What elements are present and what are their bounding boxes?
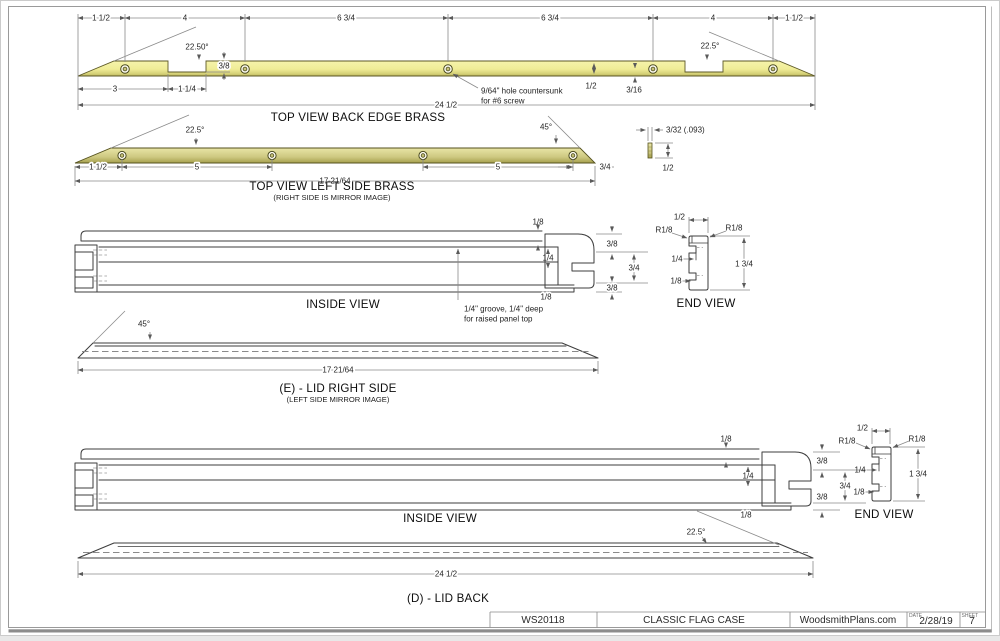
radius-text: R1/8 (656, 226, 673, 235)
groove-note: 1/4" groove, 1/4" deep (464, 305, 544, 314)
angle-text: 45° (540, 123, 552, 132)
date-value: 2/28/19 (919, 616, 953, 627)
dim-text: 1 3/4 (909, 470, 927, 479)
dim-text: 6 3/4 (337, 14, 355, 23)
radius-text: R1/8 (909, 435, 926, 444)
screw-hole (569, 151, 577, 159)
project-title: CLASSIC FLAG CASE (643, 615, 745, 626)
dim-text: 5 (496, 163, 501, 172)
dim-text: 1/8 (532, 218, 544, 227)
source-site: WoodsmithPlans.com (800, 615, 897, 626)
view-title: END VIEW (677, 297, 736, 310)
dim-text: 1/4 (742, 472, 754, 481)
screw-hole (241, 65, 250, 74)
angle-text: 45° (138, 320, 150, 329)
dim-text: 3/32 (.093) (666, 126, 705, 135)
screw-hole (649, 65, 658, 74)
screw-hole (419, 151, 427, 159)
dim-text: 1/2 (585, 82, 597, 91)
dim-text: 1/4 (671, 255, 683, 264)
view-title: END VIEW (855, 508, 914, 521)
view-subtitle: (RIGHT SIDE IS MIRROR IMAGE) (273, 193, 391, 202)
dim-text: 3/4 (839, 482, 851, 491)
dim-text: 24 1/2 (435, 570, 458, 579)
radius-text: R1/8 (726, 224, 743, 233)
view-title: (E) - LID RIGHT SIDE (279, 382, 396, 395)
angle-text: 22.5° (687, 528, 706, 537)
dim-text: 3/8 (218, 62, 230, 71)
plan-page: 1 1/2 4 6 3/4 6 3/4 4 1 1/2 22.50° 22.5°… (0, 0, 1000, 636)
dim-text: 1/2 (857, 424, 869, 433)
dim-text: 1/8 (740, 511, 752, 520)
dim-text: 1 1/2 (785, 14, 803, 23)
dim-text: 1 3/4 (735, 260, 753, 269)
view-title: (D) - LID BACK (407, 592, 489, 605)
dim-text: 3/8 (606, 284, 618, 293)
angle-text: 22.50° (185, 43, 208, 52)
view-subtitle: (LEFT SIDE MIRROR IMAGE) (287, 395, 390, 404)
dim-text: 1 1/2 (89, 163, 107, 172)
dim-text: 3/4 (628, 264, 640, 273)
view-title: INSIDE VIEW (306, 298, 380, 311)
view-title: TOP VIEW LEFT SIDE BRASS (249, 180, 414, 193)
radius-text: R1/8 (839, 437, 856, 446)
dim-text: 1 1/4 (178, 85, 196, 94)
dim-text: 1/8 (853, 488, 865, 497)
angle-text: 22.5° (701, 42, 720, 51)
plan-sheet: 1 1/2 4 6 3/4 6 3/4 4 1 1/2 22.50° 22.5°… (0, 0, 1000, 636)
groove-note: for raised panel top (464, 315, 533, 324)
hole-note: for #6 screw (481, 97, 525, 106)
brass-strip (75, 148, 595, 163)
dim-text: 17 21/64 (322, 366, 354, 375)
sheet-number: 7 (969, 616, 975, 627)
dim-text: 3/4 (599, 163, 611, 172)
view-title: INSIDE VIEW (403, 512, 477, 525)
dim-text: 1/2 (662, 164, 674, 173)
dim-text: 3 (113, 85, 118, 94)
view-title: TOP VIEW BACK EDGE BRASS (271, 111, 446, 124)
screw-hole (118, 151, 126, 159)
border-bottom-band (9, 629, 992, 632)
screw-hole (268, 151, 276, 159)
dim-text: 1 1/2 (92, 14, 110, 23)
screw-hole (769, 65, 778, 74)
dim-text: 3/8 (816, 493, 828, 502)
dim-text: 1/4 (854, 466, 866, 475)
dim-text: 4 (183, 14, 188, 23)
angle-text: 22.5° (186, 126, 205, 135)
dim-text: 1/2 (674, 213, 686, 222)
screw-hole (121, 65, 130, 74)
brass-bar (648, 143, 652, 158)
dim-text: 5 (195, 163, 200, 172)
hole-note: 9/64" hole countersunk (481, 87, 564, 96)
dim-text: 1/8 (670, 277, 682, 286)
dim-text: 4 (711, 14, 716, 23)
dim-text: 6 3/4 (541, 14, 559, 23)
dim-text: 1/8 (720, 435, 732, 444)
dim-text: 3/16 (626, 86, 642, 95)
screw-hole (444, 65, 453, 74)
dim-text: 1/8 (540, 293, 552, 302)
dim-text: 24 1/2 (435, 101, 458, 110)
dim-text: 3/8 (816, 457, 828, 466)
dim-text: 1/4 (542, 254, 554, 263)
dim-text: 3/8 (606, 240, 618, 249)
part-number: WS20118 (521, 615, 565, 626)
